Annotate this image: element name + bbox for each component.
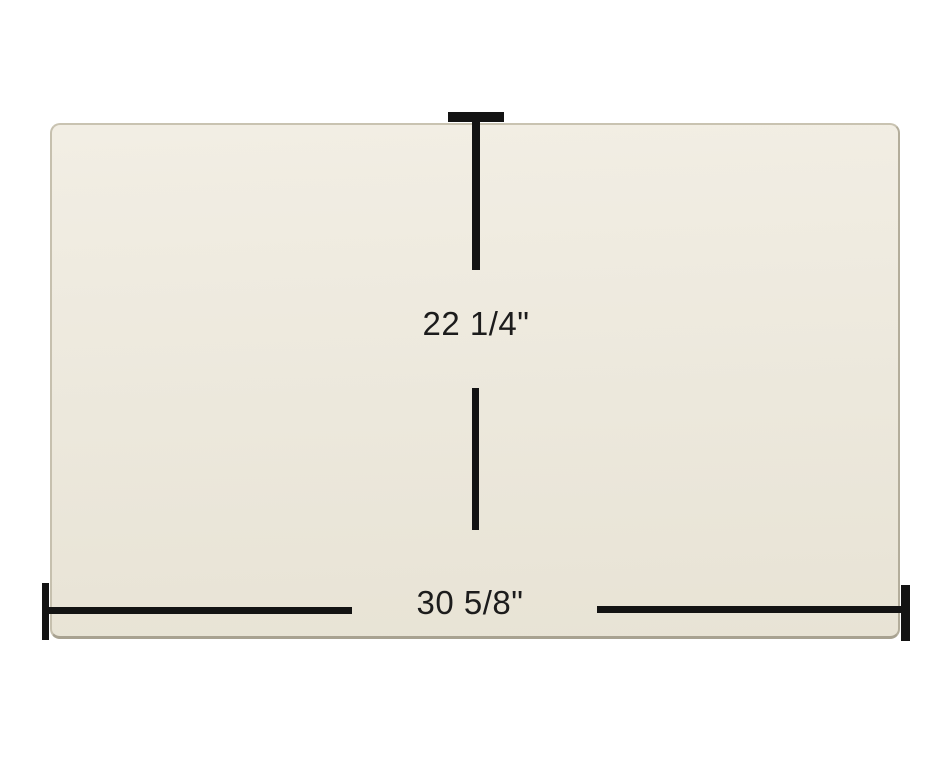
width-dimension-line-right	[597, 606, 904, 613]
height-dimension-label: 22 1/4"	[423, 307, 530, 340]
width-dimension-right-cap	[901, 585, 910, 641]
product-dimension-diagram: 22 1/4" 30 5/8"	[0, 0, 950, 764]
height-dimension-line-lower	[472, 388, 479, 530]
width-dimension-line-left	[45, 607, 352, 614]
height-dimension-line-upper	[472, 121, 480, 270]
width-dimension-label: 30 5/8"	[417, 586, 524, 619]
